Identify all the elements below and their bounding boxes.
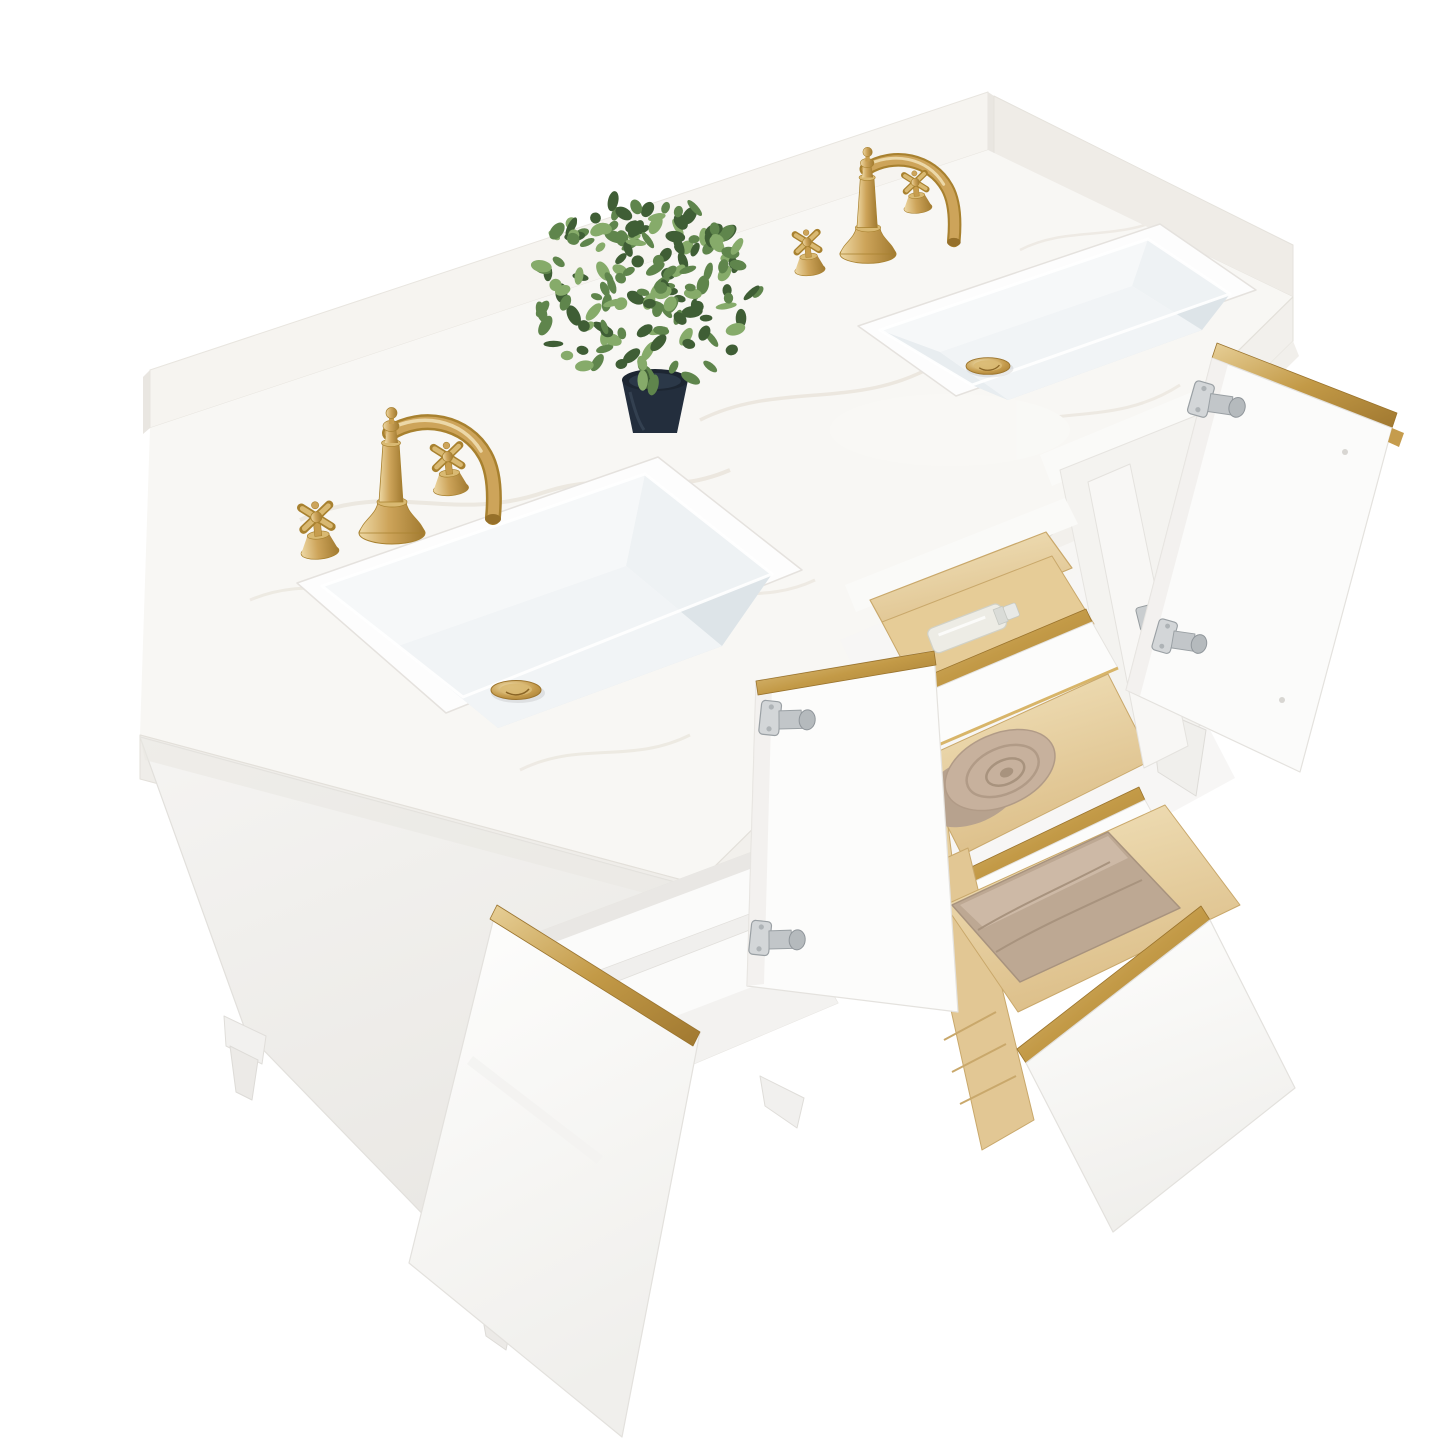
center-door [747,651,958,1012]
product-photo-stage [0,0,1445,1445]
center-front-foot [760,1076,804,1128]
vanity-illustration [0,0,1445,1445]
